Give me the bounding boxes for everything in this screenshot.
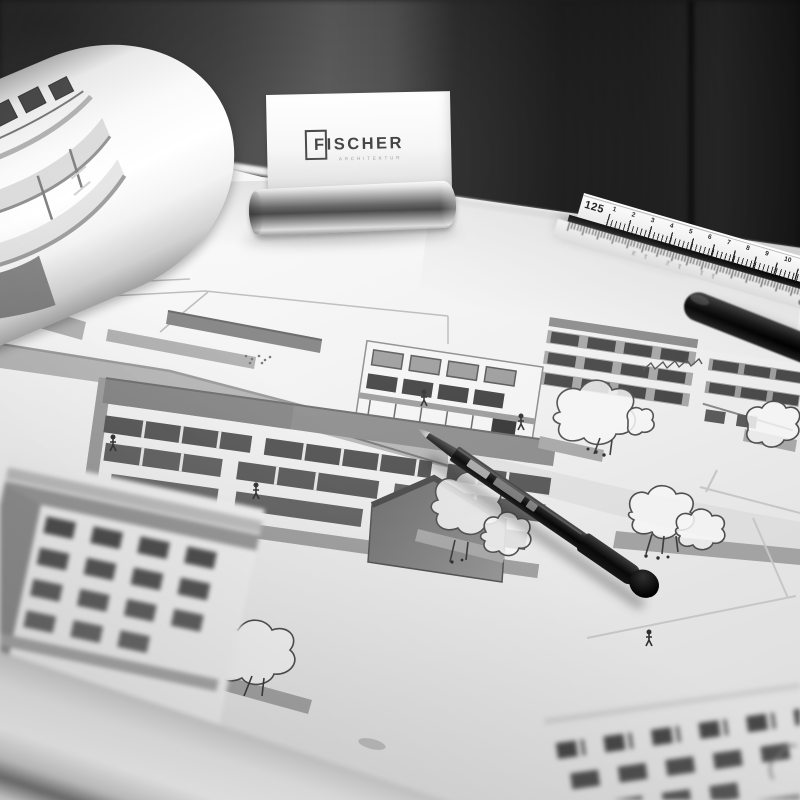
ruler-number: 10 <box>783 256 792 265</box>
ruler-number: 3 <box>650 217 655 225</box>
ruler-number: 2 <box>631 211 636 219</box>
ruler-number: 5 <box>688 228 693 236</box>
card-brand-text: FISCHER <box>314 134 404 154</box>
ruler-number: 6 <box>707 233 712 241</box>
card-logo: FISCHER ARCHITEKTUR <box>267 133 452 167</box>
ruler-number: 4 <box>669 222 674 230</box>
ruler-number: 7 <box>726 239 731 247</box>
ruler-number: 8 <box>745 245 750 253</box>
architect-desk-photo: FISCHER ARCHITEKTUR 125 1 2 3 4 5 6 7 8 … <box>0 0 800 800</box>
ruler-scale-label: 125 <box>583 199 605 216</box>
ruler-number: 1 <box>612 206 617 214</box>
marker-highlight <box>689 292 711 308</box>
card-holder <box>248 180 457 236</box>
card-logo-row: FISCHER ARCHITEKTUR <box>314 134 404 162</box>
ruler-number: 9 <box>764 250 769 258</box>
card-subtitle-text: ARCHITEKTUR <box>314 155 404 162</box>
business-card: FISCHER ARCHITEKTUR <box>266 91 452 194</box>
